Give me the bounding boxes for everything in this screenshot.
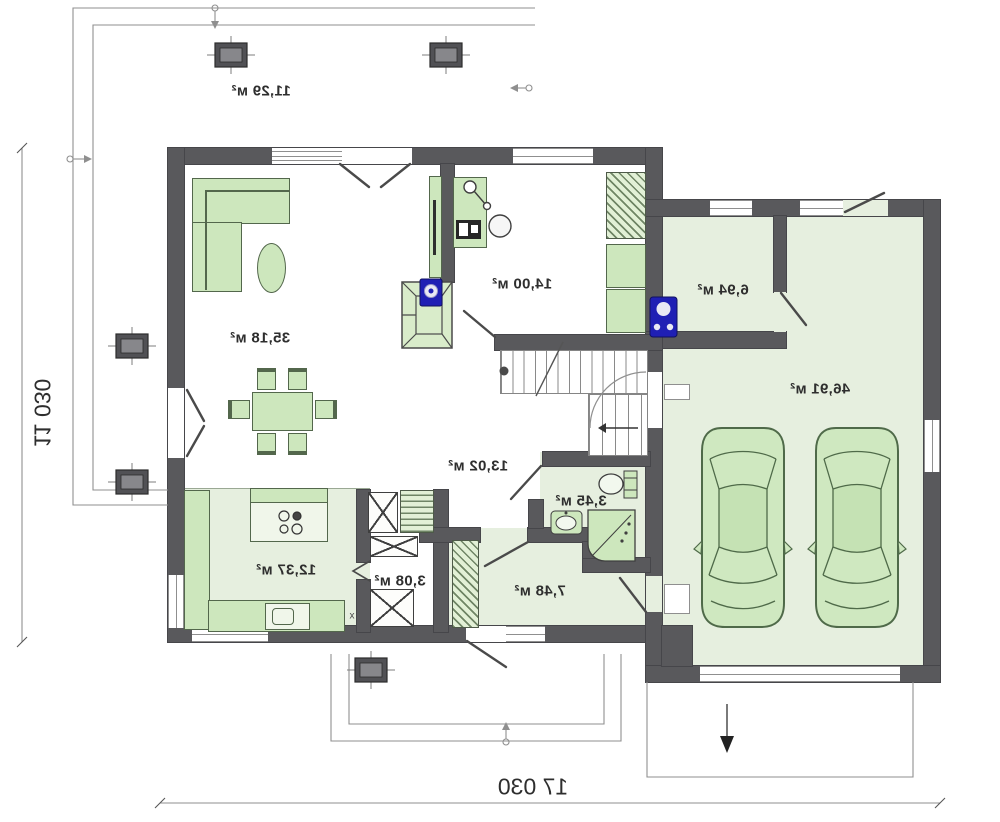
- desk-chair: [489, 215, 511, 237]
- column-icon: [108, 327, 156, 365]
- stair-detail: [500, 342, 639, 433]
- stove-icon: [420, 279, 442, 306]
- dimension-depth: 11 030: [29, 379, 56, 448]
- room-label-garage: 46,91 м²: [790, 381, 850, 398]
- room-label-corridor: 7,48 м²: [514, 583, 566, 600]
- car-icon: [808, 428, 906, 627]
- column-icon: [108, 463, 156, 501]
- boiler-icon: [650, 297, 677, 337]
- room-label-living: 35,18 м²: [230, 330, 290, 347]
- room-label-kitchen: 12,37 м²: [256, 562, 316, 579]
- door-swing-arc: [590, 372, 646, 428]
- floor-plan: 11,29 м² 35,18 м² 14,00 м² 6,94 м² 46,91…: [0, 0, 1000, 822]
- monitor-icon: [456, 220, 481, 239]
- room-label-office: 14,00 м²: [492, 276, 552, 293]
- plan-linework: [0, 0, 1000, 822]
- dimension-width: 17 030: [498, 774, 568, 801]
- sink-icon: [551, 511, 582, 534]
- shower-icon: [588, 510, 635, 561]
- room-label-terrace: 11,29 м²: [231, 83, 290, 100]
- reference-markers: [67, 5, 532, 745]
- site-lines: [73, 8, 913, 777]
- room-label-hall: 13,02 м²: [448, 458, 508, 475]
- desk-lamp-icon: [464, 181, 491, 210]
- room-label-bathroom: 3,45 м²: [555, 493, 607, 510]
- column-icon: [207, 36, 255, 74]
- driveway-arrow-icon: [720, 704, 734, 753]
- dimension-line-left: [17, 143, 27, 647]
- cooktop-icon: [279, 511, 302, 534]
- room-label-pantry: 3,08 м²: [374, 573, 426, 590]
- room-label-utility: 6,94 м²: [697, 282, 749, 299]
- column-icon: [422, 36, 470, 74]
- car-icon: [694, 428, 792, 627]
- column-icon: [347, 651, 395, 689]
- kitchen-counter-mark: x: [350, 611, 355, 622]
